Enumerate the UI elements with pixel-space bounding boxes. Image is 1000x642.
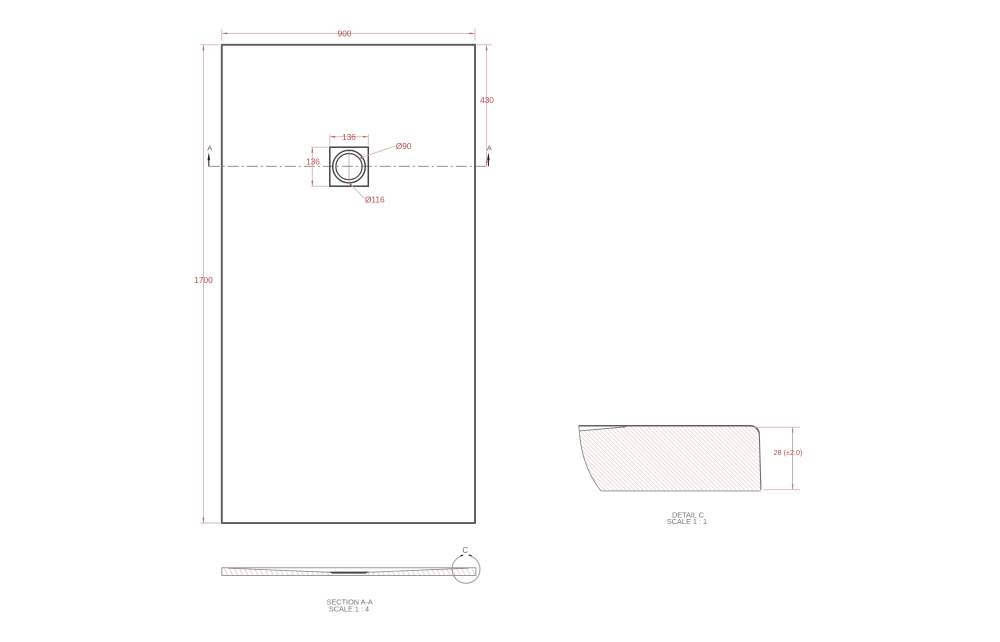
svg-text:SCALE 1 : 1: SCALE 1 : 1 xyxy=(667,517,707,526)
svg-text:SCALE 1 : 4: SCALE 1 : 4 xyxy=(329,605,369,614)
svg-text:A: A xyxy=(487,144,492,153)
svg-text:28 (±2.0): 28 (±2.0) xyxy=(774,448,803,457)
svg-text:A: A xyxy=(207,144,212,153)
svg-text:136: 136 xyxy=(342,132,356,142)
svg-text:136: 136 xyxy=(306,157,320,167)
svg-text:430: 430 xyxy=(480,95,494,105)
svg-text:Ø116: Ø116 xyxy=(365,195,385,205)
svg-text:C: C xyxy=(462,546,468,555)
svg-text:1700: 1700 xyxy=(194,275,213,285)
svg-text:Ø90: Ø90 xyxy=(396,141,412,151)
svg-text:900: 900 xyxy=(338,28,352,38)
